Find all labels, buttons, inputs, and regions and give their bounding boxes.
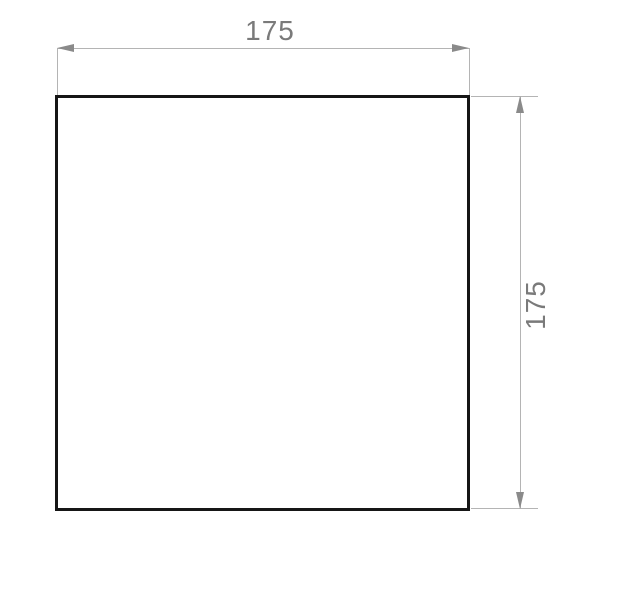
arrowhead-down-icon — [516, 492, 524, 509]
arrowhead-up-icon — [516, 96, 524, 113]
right-dimension-bottom-extension-line — [471, 508, 538, 509]
arrowhead-left-icon — [57, 44, 74, 52]
drawing-canvas: 175 175 — [0, 0, 622, 600]
arrowhead-right-icon — [452, 44, 469, 52]
square-outline — [55, 95, 470, 511]
top-dimension-label: 175 — [245, 17, 295, 45]
right-dimension-label: 175 — [522, 280, 550, 330]
right-dimension-top-extension-line — [471, 96, 538, 97]
top-dimension-left-extension-line — [57, 48, 58, 95]
top-dimension-line — [57, 48, 469, 49]
top-dimension-right-extension-line — [469, 48, 470, 95]
